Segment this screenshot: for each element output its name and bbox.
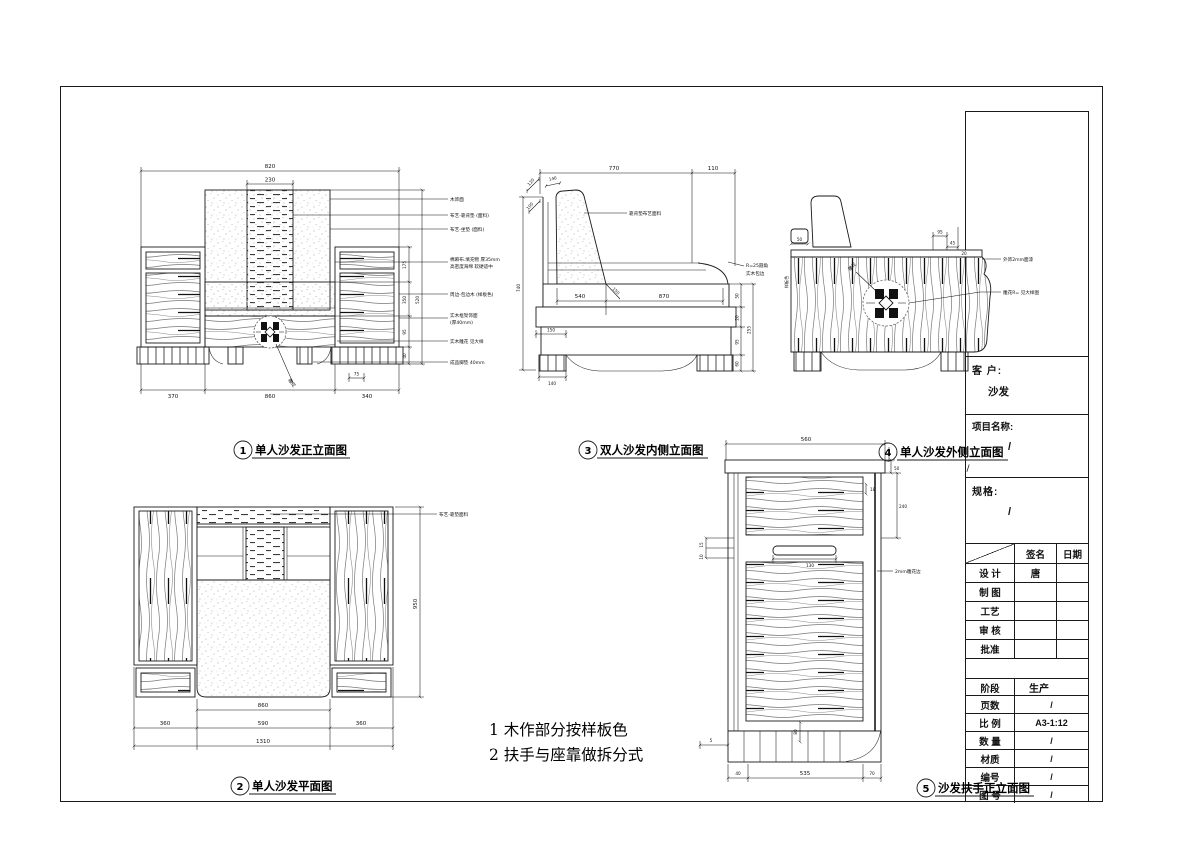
dim-label: 70 [869, 771, 875, 776]
dim-label: 50 [735, 293, 740, 299]
dim-label: 255 [747, 326, 752, 334]
dim-label: 95 [937, 230, 943, 235]
dim-label: 860 [258, 703, 269, 709]
dim-label: 40 [735, 771, 741, 776]
dim-label: 130 [806, 563, 814, 568]
material-callout: 布艺-坐垫 (面料) [450, 226, 484, 233]
dim-label: 40 [402, 353, 407, 359]
caption-label-armrest-elevation: 沙发扶手正立面图 [938, 781, 1030, 795]
dim-label: 950 [413, 598, 419, 609]
material-callout: 2mm雕花边 [895, 568, 921, 575]
drawing-3-double-sofa-inner-side-elevation: 770 110 120 140 100 740 540 870 150 [516, 166, 768, 386]
dim-label: 340 [362, 394, 373, 400]
dim-label: 10 [699, 554, 704, 560]
caption-label-plan: 单人沙发平面图 [252, 779, 333, 793]
dim-label: 520 [415, 296, 420, 304]
material-callout: 外饰2mm面漆 [1003, 256, 1034, 263]
dim-label: 140 [548, 381, 556, 386]
dim-label: 560 [801, 437, 812, 443]
dim-label: 75 [354, 372, 360, 377]
material-callout: 高密度海绵 软硬适中 [450, 263, 493, 270]
material-callout: 木饰面 [450, 196, 464, 203]
caption-label-inner-side-elevation: 双人沙发内侧立面图 [599, 443, 704, 457]
caption-label-front-elevation: 单人沙发正立面图 [255, 443, 347, 457]
note-line-2: 2 扶手与座靠做拆分式 [489, 746, 643, 764]
material-callout: 实木框架饰面 [450, 312, 478, 319]
drawing-4-single-sofa-outer-side-elevation: 50 95 45 20 外饰2mm面漆 雕花R= 见大样图 雕花 样板色 [783, 196, 1039, 371]
dim-label: 50 [797, 237, 803, 242]
drawing-2-single-sofa-plan: 950 860 360 590 360 1310 布艺-靠垫面料 [134, 507, 469, 750]
cad-drawing-canvas: 820 230 370 860 340 75 [0, 0, 1191, 842]
dim-label: 95 [402, 329, 407, 335]
dim-label: 110 [708, 166, 719, 172]
dim-label: 50 [894, 466, 900, 471]
dim-label: 15 [699, 542, 704, 548]
dim-label: 590 [258, 721, 269, 727]
dim-label: 60 [735, 361, 740, 367]
material-callout: (厚40mm) [450, 320, 473, 326]
dim-label: 360 [356, 721, 367, 727]
caption-number: 2 [237, 782, 244, 793]
drawing-5-sofa-armrest-front-elevation: 560 50 240 18 15 10 5 130 [699, 437, 921, 782]
drawing-1-single-sofa-front-elevation: 820 230 370 860 340 75 [137, 164, 500, 400]
material-callout: 棉麻布.填充物 厚35mm [450, 256, 500, 263]
dim-label: 150 [547, 328, 555, 333]
dim-label: 95 [735, 339, 740, 345]
dim-label: 80 [793, 729, 798, 735]
dim-label: 535 [800, 771, 811, 777]
drawing-sheet: 客 户: 沙发 项目名称: / 规格: / 签名 日期 设 计 唐 制 图 [0, 0, 1191, 842]
dim-label: 860 [265, 394, 276, 400]
dim-label: 18 [870, 487, 876, 492]
dim-label: 20 [735, 315, 740, 321]
dim-label: 100 [525, 201, 534, 211]
dim-label: 230 [265, 178, 276, 184]
dim-label: 870 [659, 294, 670, 300]
material-callout: 布艺-靠背垫 (面料) [450, 212, 489, 219]
dim-label: 20 [961, 251, 967, 256]
material-callout: 实木包边 [746, 270, 765, 277]
material-callout: R=25圆角 [746, 262, 768, 269]
material-callout: 实木雕花 见大样 [450, 338, 484, 345]
dim-label: 740 [516, 284, 521, 292]
material-callout: 布艺-靠垫面料 [439, 511, 469, 518]
dim-label: 120 [526, 177, 535, 187]
dim-label: 540 [575, 294, 586, 300]
dim-label: 350 [402, 296, 407, 304]
caption-number: 3 [585, 446, 592, 457]
dim-label: 140 [548, 175, 557, 182]
note-line-1: 1 木作部分按样板色 [489, 721, 628, 739]
dim-label: 770 [609, 166, 620, 172]
caption-number: 4 [885, 448, 892, 459]
material-callout: 样板色 [783, 275, 790, 288]
material-callout: 成品脚垫 40mm [450, 359, 485, 366]
dim-label: 1310 [256, 739, 270, 745]
caption-label-outer-side-elevation: 单人沙发外侧立面图 [900, 445, 1004, 459]
dim-label: 360 [160, 721, 171, 727]
drawing-notes: 1 木作部分按样板色 2 扶手与座靠做拆分式 [489, 721, 643, 764]
material-callout: 周边-包边木 (样板色) [450, 291, 494, 298]
material-callout: 靠背垫布艺面料 [629, 210, 662, 217]
carve-callout: 雕花 [286, 377, 297, 389]
caption-number: 1 [240, 446, 247, 457]
dim-label: 240 [899, 504, 907, 509]
caption-suffix: / [966, 464, 970, 474]
dim-label: 45 [950, 241, 956, 246]
material-callout: 雕花R= 见大样图 [1003, 289, 1039, 296]
dim-label: 370 [168, 394, 179, 400]
caption-number: 5 [923, 784, 930, 795]
dim-label: 820 [265, 164, 276, 170]
dim-label: 5 [710, 738, 713, 743]
